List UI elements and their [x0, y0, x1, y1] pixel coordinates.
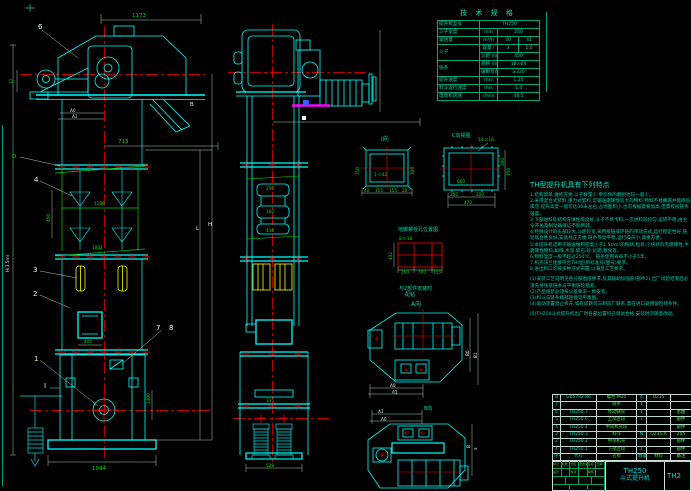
- dim-A0: A0: [70, 108, 76, 113]
- table-cell: 1: [553, 446, 561, 453]
- table-cell: 总图: [671, 409, 691, 416]
- table-cell: 3: [498, 45, 519, 53]
- side-flange-marks: [242, 161, 302, 410]
- text-line: 5.本提升机适用于输送堆积密度小于1.5t/m³的粉状,粒状,小块状的无磨琢性,…: [530, 243, 691, 255]
- table-cell: TH250.2: [561, 439, 597, 446]
- blue-mark: [303, 100, 309, 105]
- title-block: 标记处数分区更改文件号签名日期 设计校对审核 TH250 斗式提升机 TH2: [552, 460, 691, 491]
- dim-i-20: 20: [402, 188, 408, 193]
- dim-av-A1: A1: [392, 390, 398, 395]
- text-line: 3.下部进料处结构充填性能良好,斗子不易卡料,一次进料较均匀,运转平稳,由主令开…: [530, 218, 691, 230]
- table-cell: 斗距 mm: [480, 53, 498, 61]
- signature-row-2: [553, 477, 605, 485]
- detail-view-C: C向视图 14-∅18 250 200 470 660 200 350: [440, 132, 511, 208]
- drawing-number: TH2: [667, 472, 681, 480]
- text-line: (1)安装工艺说明见各分部图纸要求,及其辅助加强筋(部件2),出厂试验结束后必须…: [530, 277, 691, 289]
- balloon-7: 7: [156, 324, 160, 332]
- dim-c-200: 200: [476, 192, 484, 197]
- table-cell: 链条: [438, 61, 480, 77]
- text-line: (4)驱动装置禁止拆开,如有问题可与制造厂联系,需在进口处预留检修条件。: [530, 302, 691, 308]
- strip-cell: [596, 469, 605, 476]
- table-cell: TH250: [480, 21, 540, 29]
- table-cell: ≥320: [498, 69, 540, 77]
- table-cell: 2: [553, 439, 561, 446]
- table-row: 3TH250.3料斗NQ235-A205: [553, 431, 691, 438]
- table-cell: r/min: [480, 93, 498, 101]
- dim-1044: 1044: [92, 466, 106, 472]
- table-cell: TH250.1: [561, 446, 597, 453]
- dim-1400: 1400: [146, 393, 151, 404]
- table-cell: [647, 446, 671, 453]
- signature-row: 设计校对审核: [553, 469, 605, 477]
- drawing-number-cell: TH2: [665, 461, 690, 490]
- strip-cell: 处数: [562, 461, 571, 468]
- strip-cell: 审核: [588, 469, 597, 476]
- centerlines: [20, 24, 370, 466]
- table-cell: 4: [553, 424, 561, 431]
- dim-i-155b: 155: [389, 188, 397, 193]
- view-b-title: B向: [424, 405, 432, 412]
- table-row: 提升机型号TH250: [438, 21, 540, 29]
- table-cell: 上部区段: [597, 417, 637, 424]
- section-mark-B: B: [190, 102, 194, 108]
- table-cell: 电动机转速: [438, 93, 480, 101]
- table-cell: 1: [637, 446, 647, 453]
- table-cell: 1: [637, 417, 647, 424]
- detail-anchor-bolts: 地脚螺栓孔位置图 8-∅18 432 260 300 155 与2部件安装时 配…: [388, 226, 442, 298]
- table-cell: TH250.6: [561, 417, 597, 424]
- dim-i-350: 350: [355, 167, 360, 175]
- table-cell: m/s: [480, 85, 498, 93]
- table-cell: 下部区段: [597, 446, 637, 453]
- dim-c-200r: 200: [500, 158, 505, 166]
- table-cell: 链条: [597, 402, 637, 409]
- balloon-1: 1: [34, 355, 38, 363]
- dim-160: 160: [266, 209, 274, 214]
- table-row: 7链条1: [553, 402, 691, 409]
- table-cell: 48.5: [498, 93, 540, 101]
- dim-A1: A1: [72, 114, 78, 119]
- table-cell: 3: [553, 431, 561, 438]
- features-body: 1.结构简单,维修方便,斗子数量少,牵引件的磨损也较一般少。2.采用混合式装料,…: [530, 193, 691, 319]
- table-row: 1TH250.1下部区段1部件: [553, 446, 691, 453]
- dim-c-470: 470: [464, 200, 472, 205]
- balloon-6: 6: [38, 23, 43, 31]
- anchor-title: 地脚螺栓孔位置图: [398, 226, 438, 233]
- table-cell: m/s: [480, 77, 498, 85]
- table-row: 输送量m³/h3041: [438, 37, 540, 45]
- table-cell: 250: [498, 29, 540, 37]
- balloon-4: 4: [34, 176, 39, 184]
- white-mark: [302, 116, 306, 120]
- dim-438: 438: [266, 228, 274, 233]
- detail-i-title: I向: [381, 135, 389, 143]
- dim-335: 335: [266, 398, 274, 403]
- strip-cell: 校对: [570, 469, 579, 476]
- table-cell: m³/h: [480, 37, 498, 45]
- bom-grid: 8GB5782-86螺栓 M204Q2357链条16TH250.7传动链轮1总图…: [552, 394, 691, 462]
- table-cell: [647, 402, 671, 409]
- table-cell: mm: [480, 29, 498, 37]
- signature-row-3: [553, 485, 605, 491]
- table-cell: 30: [498, 37, 519, 45]
- table-cell: 料斗: [597, 431, 637, 438]
- table-cell: 规格 mm: [480, 61, 498, 69]
- table-cell: TH250.4: [561, 424, 597, 431]
- features-heading: TH型提升机具有下列特点: [530, 180, 691, 190]
- front-view: [20, 26, 205, 466]
- dim-400: 400: [84, 339, 92, 344]
- dim-a-300: 300: [418, 270, 426, 275]
- dim-bv-A1: A1: [378, 409, 384, 414]
- table-cell: [647, 424, 671, 431]
- balloon-3: 3: [33, 266, 37, 274]
- table-cell: 1.25: [498, 77, 540, 85]
- table-cell: 4: [637, 395, 647, 402]
- table-row: 2TH250.2中部机壳部件: [553, 439, 691, 446]
- text-line: (5)TH250斗式提升机出厂时各部位置均已调试合格,安装时勿随意改动。: [530, 312, 691, 318]
- dim-a-155: 155: [433, 270, 441, 275]
- view-a-title: A向: [411, 300, 421, 308]
- dim-713: 713: [118, 139, 129, 145]
- dim-i-155a: 155: [375, 188, 383, 193]
- strip-cell: 标记: [553, 461, 562, 468]
- table-cell: [561, 402, 597, 409]
- table-cell: [647, 439, 671, 446]
- table-cell: 部件: [671, 439, 691, 446]
- features-notes: TH型提升机具有下列特点 1.结构简单,维修方便,斗子数量少,牵引件的磨损也较一…: [530, 180, 691, 388]
- table-cell: 螺栓 M20: [597, 395, 637, 402]
- spec-table-grid: 提升机型号TH250斗子宽度mm250输送量m³/h3041斗子容量 l31.5…: [437, 20, 540, 101]
- dim-c-660: 660: [457, 179, 465, 184]
- dim-12: 12: [9, 78, 14, 84]
- strip-cell: 日期: [596, 461, 605, 468]
- strip-cell: 设计: [553, 469, 562, 476]
- dim-520: 520: [266, 463, 274, 468]
- table-cell: 部件: [671, 417, 691, 424]
- table-row: 料斗运行速度m/s1.4: [438, 85, 540, 93]
- title-block-name-cell: TH250 斗式提升机: [606, 461, 665, 490]
- dim-av-A0: A0: [390, 383, 396, 388]
- detail-section-I: I向 40 155 155 20 350 300 1-∅42: [355, 135, 415, 196]
- table-row: 电动机转速r/min48.5: [438, 93, 540, 101]
- table-cell: 450: [498, 53, 540, 61]
- dim-bv-A0: A0: [381, 417, 387, 422]
- dim-1173: 1173: [132, 13, 146, 19]
- table-cell: 部件: [671, 424, 691, 431]
- table-cell: 中部机壳: [597, 439, 637, 446]
- table-cell: 斗子: [438, 45, 480, 61]
- dim-250: 250: [266, 186, 274, 191]
- table-cell: 1: [637, 409, 647, 416]
- table-cell: 5: [553, 417, 561, 424]
- table-cell: 1: [637, 402, 647, 409]
- title-block-sign-zone: 标记处数分区更改文件号签名日期 设计校对审核: [553, 461, 606, 490]
- table-cell: TH250.7: [561, 409, 597, 416]
- detail-view-A: A向 B0 B1 A0 A1: [368, 300, 478, 398]
- dim-av-B0: B0: [465, 350, 470, 356]
- dim-450: 450: [46, 214, 51, 222]
- dim-1188: 1188: [94, 201, 105, 206]
- dim-i-hole: 1-∅42: [374, 172, 387, 177]
- table-cell: 料斗运行速度: [438, 85, 480, 93]
- side-view: 250 160 438 335 520: [234, 30, 420, 472]
- dim-a-432: 432: [388, 252, 393, 260]
- dim-L: L: [196, 226, 200, 232]
- table-cell: [647, 417, 671, 424]
- table-cell: 中间机壳段: [597, 424, 637, 431]
- table-cell: 斗子宽度: [438, 29, 480, 37]
- table-cell: 8: [553, 395, 561, 402]
- table-row: 8GB5782-86螺栓 M204Q235: [553, 395, 691, 402]
- product-name: 斗式提升机: [606, 476, 664, 483]
- table-row: 斗子容量 l31.5: [438, 45, 540, 53]
- table-cell: 部件: [671, 446, 691, 453]
- table-cell: 容量 l: [480, 45, 498, 53]
- table-cell: [647, 409, 671, 416]
- balloon-2: 2: [33, 290, 37, 298]
- cad-sheet: 1173 713 400 1044 450 1188 1002 12 H(3.5…: [0, 0, 691, 491]
- dim-height-H: H(3.5m): [5, 254, 10, 272]
- detail-c-title: C向视图: [452, 132, 471, 139]
- table-cell: [671, 402, 691, 409]
- table-cell: N: [637, 431, 647, 438]
- spec-table-title: 技 术 规 格: [437, 8, 539, 18]
- table-cell: 传动链轮: [597, 409, 637, 416]
- spec-table: 技 术 规 格 提升机型号TH250斗子宽度mm250输送量m³/h3041斗子…: [437, 8, 539, 101]
- fit-note-line2: 配钻: [405, 291, 415, 298]
- strip-cell: [562, 469, 571, 476]
- dim-H-right: H: [208, 222, 212, 228]
- section-mark-D: D: [12, 154, 16, 160]
- table-row: 提升速度m/s1.25: [438, 77, 540, 85]
- strip-cell: 更改文件号: [579, 461, 588, 468]
- table-cell: 提升速度: [438, 77, 480, 85]
- table-cell: 205: [671, 431, 691, 438]
- dim-i-40: 40: [364, 188, 370, 193]
- text-line: 2.采用混合式装料,重力式卸料,可输送磨琢性较大的物料,物料不易撒漏并能降低噪音…: [530, 199, 691, 218]
- table-cell: Q235-A: [647, 431, 671, 438]
- dim-c-250: 250: [450, 192, 458, 197]
- strip-cell: 分区: [570, 461, 579, 468]
- table-cell: TH250.3: [561, 431, 597, 438]
- bom-table: 8GB5782-86螺栓 M204Q2357链条16TH250.7传动链轮1总图…: [552, 394, 691, 462]
- dim-a-260: 260: [401, 270, 409, 275]
- table-cell: 1.4: [498, 85, 540, 93]
- revision-strip: 标记处数分区更改文件号签名日期: [553, 461, 605, 469]
- dim-i-300: 300: [410, 167, 415, 175]
- table-cell: [637, 424, 647, 431]
- table-cell: 提升机型号: [438, 21, 480, 29]
- dim-c-350: 350: [506, 168, 511, 176]
- table-cell: GB5782-86: [561, 395, 597, 402]
- table-cell: [671, 395, 691, 402]
- anchor-bolt-label: 8-∅18: [399, 236, 412, 241]
- table-cell: 18×64: [498, 61, 540, 69]
- detail-view-B: B向 A1 A0 B a: [368, 405, 478, 488]
- table-cell: 输送量: [438, 37, 480, 45]
- dim-bv-a: a: [473, 447, 478, 450]
- section-mark-I: I: [44, 382, 46, 390]
- balloon-8: 8: [169, 324, 173, 332]
- fit-note-line1: 与2部件安装时: [399, 285, 432, 292]
- strip-cell: 签名: [588, 461, 597, 468]
- text-line: 4.特殊设计的头部较大,斗距较宽,采用板链或环链的传动方式,运行稳定性好,链轮啮…: [530, 230, 691, 242]
- dim-c-holes: 14-∅18: [478, 137, 494, 142]
- table-row: 4TH250.4中间机壳段部件: [553, 424, 691, 431]
- dim-1002: 1002: [92, 245, 103, 250]
- dim-av-B1: B1: [473, 352, 478, 358]
- strip-cell: [579, 469, 588, 476]
- table-cell: [637, 439, 647, 446]
- table-cell: Q235: [647, 395, 671, 402]
- table-row: 6TH250.7传动链轮1总图: [553, 409, 691, 416]
- table-row: 链条规格 mm18×64: [438, 61, 540, 69]
- table-cell: 1.5: [519, 45, 540, 53]
- table-row: 斗子宽度mm250: [438, 29, 540, 37]
- table-cell: 41: [519, 37, 540, 45]
- table-cell: 6: [553, 409, 561, 416]
- table-cell: 7: [553, 402, 561, 409]
- table-cell: 破断负荷 kN: [480, 69, 498, 77]
- dim-bv-B: B: [466, 445, 471, 448]
- table-row: 5TH250.6上部区段1部件: [553, 417, 691, 424]
